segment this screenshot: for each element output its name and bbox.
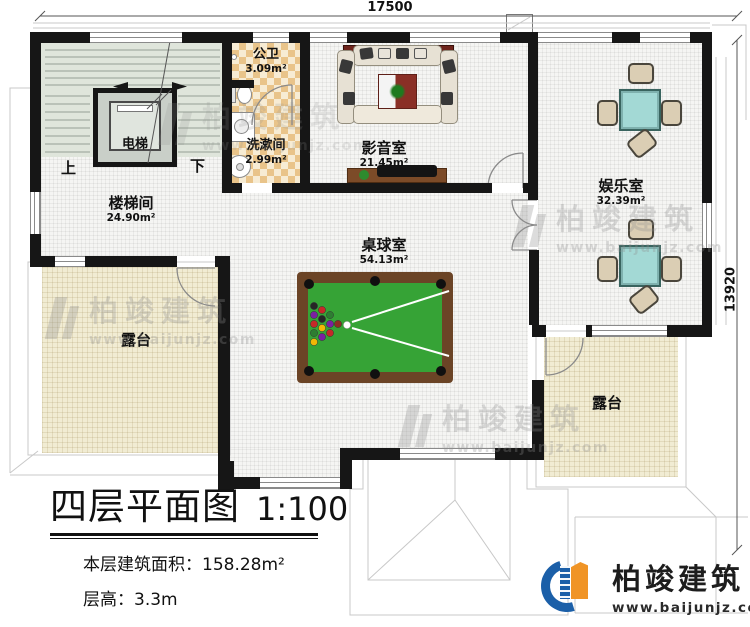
logo-icon [540, 555, 604, 617]
chair [661, 256, 682, 282]
wall-segment [347, 32, 410, 43]
wall-segment [529, 250, 539, 325]
window [410, 32, 500, 43]
watermark-icon [45, 295, 79, 341]
title-underline-thick [50, 533, 318, 536]
chair [661, 100, 682, 126]
wall-segment [222, 183, 242, 193]
window [55, 256, 85, 267]
watermark-company: 柏竣建筑 [202, 94, 369, 136]
watermark: 柏竣建筑 www.baijunjz.com [45, 288, 256, 348]
title-underline-thin [50, 538, 318, 539]
watermark-company: 柏竣建筑 [89, 288, 256, 330]
room-label-billiards: 桌球室 54.13m² [309, 236, 459, 267]
company-name: 柏竣建筑 [612, 556, 750, 598]
window [538, 32, 612, 43]
pool-pocket [304, 279, 314, 289]
logo-building-orange [571, 562, 588, 599]
wall-segment [30, 32, 41, 192]
elevator-door-slot [117, 105, 153, 112]
wall-segment [272, 183, 492, 193]
window [310, 32, 347, 43]
pool-pocket [370, 276, 380, 286]
wall-segment [218, 256, 230, 461]
window [90, 32, 182, 43]
watermark-website: www.baijunjz.com [89, 332, 256, 348]
plan-scale: 1:100 [256, 491, 348, 528]
sofa-pillow [414, 48, 427, 59]
pool-pocket [370, 369, 380, 379]
watermark: 柏竣建筑 www.baijunjz.com [158, 94, 369, 154]
wall-segment [182, 32, 253, 43]
watermark-icon [398, 403, 432, 449]
sofa-pillow [359, 47, 373, 60]
watermark-website: www.baijunjz.com [442, 440, 609, 456]
dimension-right-label: 13920 [724, 255, 739, 325]
chair [597, 256, 618, 282]
pool-pocket [436, 366, 446, 376]
wall-segment [702, 32, 712, 203]
wall-segment [232, 80, 254, 88]
floor-height-line: 层高：3.3m [83, 585, 348, 610]
wall-segment [528, 43, 538, 200]
room-label-public-bath: 公卫 3.09m² [191, 47, 341, 75]
cabinet-plant [359, 170, 369, 180]
wall-segment [352, 448, 400, 460]
sofa-pillow [378, 48, 391, 59]
title-block: 四层平面图 1:100 本层建筑面积：158.28m² 层高：3.3m [50, 487, 348, 610]
logo-building-blue [560, 566, 570, 599]
window [640, 32, 690, 43]
watermark-website: www.baijunjz.com [202, 138, 369, 154]
stair-down-label: 下 [190, 155, 205, 176]
wall-segment [340, 448, 352, 489]
window [253, 32, 289, 43]
pool-pocket [436, 279, 446, 289]
floor-area-line: 本层建筑面积：158.28m² [83, 550, 348, 575]
watermark: 柏竣建筑 www.baijunjz.com [512, 196, 723, 256]
window [30, 192, 41, 234]
wall-segment [289, 32, 310, 43]
wall-segment [532, 325, 546, 337]
sofa-pillow [396, 48, 409, 59]
sofa-pillow [441, 92, 453, 105]
wall-segment [85, 256, 177, 267]
company-logo: 柏竣建筑 www.baijunjz.com [540, 555, 750, 617]
watermark-icon [512, 203, 546, 249]
chair [597, 100, 618, 126]
chair [628, 63, 654, 84]
wall-segment [500, 32, 538, 43]
game-table [619, 89, 661, 131]
floor-plan-canvas: 电梯 [0, 0, 750, 627]
wall-segment [702, 248, 712, 337]
watermark-icon [158, 101, 192, 147]
wall-segment [30, 256, 55, 267]
dimension-top-label: 17500 [355, 0, 425, 15]
watermark: 柏竣建筑 www.baijunjz.com [398, 396, 609, 456]
watermark-website: www.baijunjz.com [556, 240, 723, 256]
wall-segment [612, 32, 640, 43]
window [592, 325, 667, 337]
stair-up-label: 上 [61, 157, 76, 178]
room-label-stairwell: 楼梯间 24.90m² [56, 194, 206, 225]
pool-table [297, 272, 453, 383]
watermark-company: 柏竣建筑 [556, 196, 723, 238]
pool-pocket [304, 366, 314, 376]
billiards-floor-ext [230, 448, 340, 478]
table-plant [389, 83, 406, 100]
roof-vent [506, 14, 533, 33]
company-website: www.baijunjz.com [612, 600, 750, 616]
plan-title: 四层平面图 [50, 487, 240, 528]
watermark-company: 柏竣建筑 [442, 396, 609, 438]
